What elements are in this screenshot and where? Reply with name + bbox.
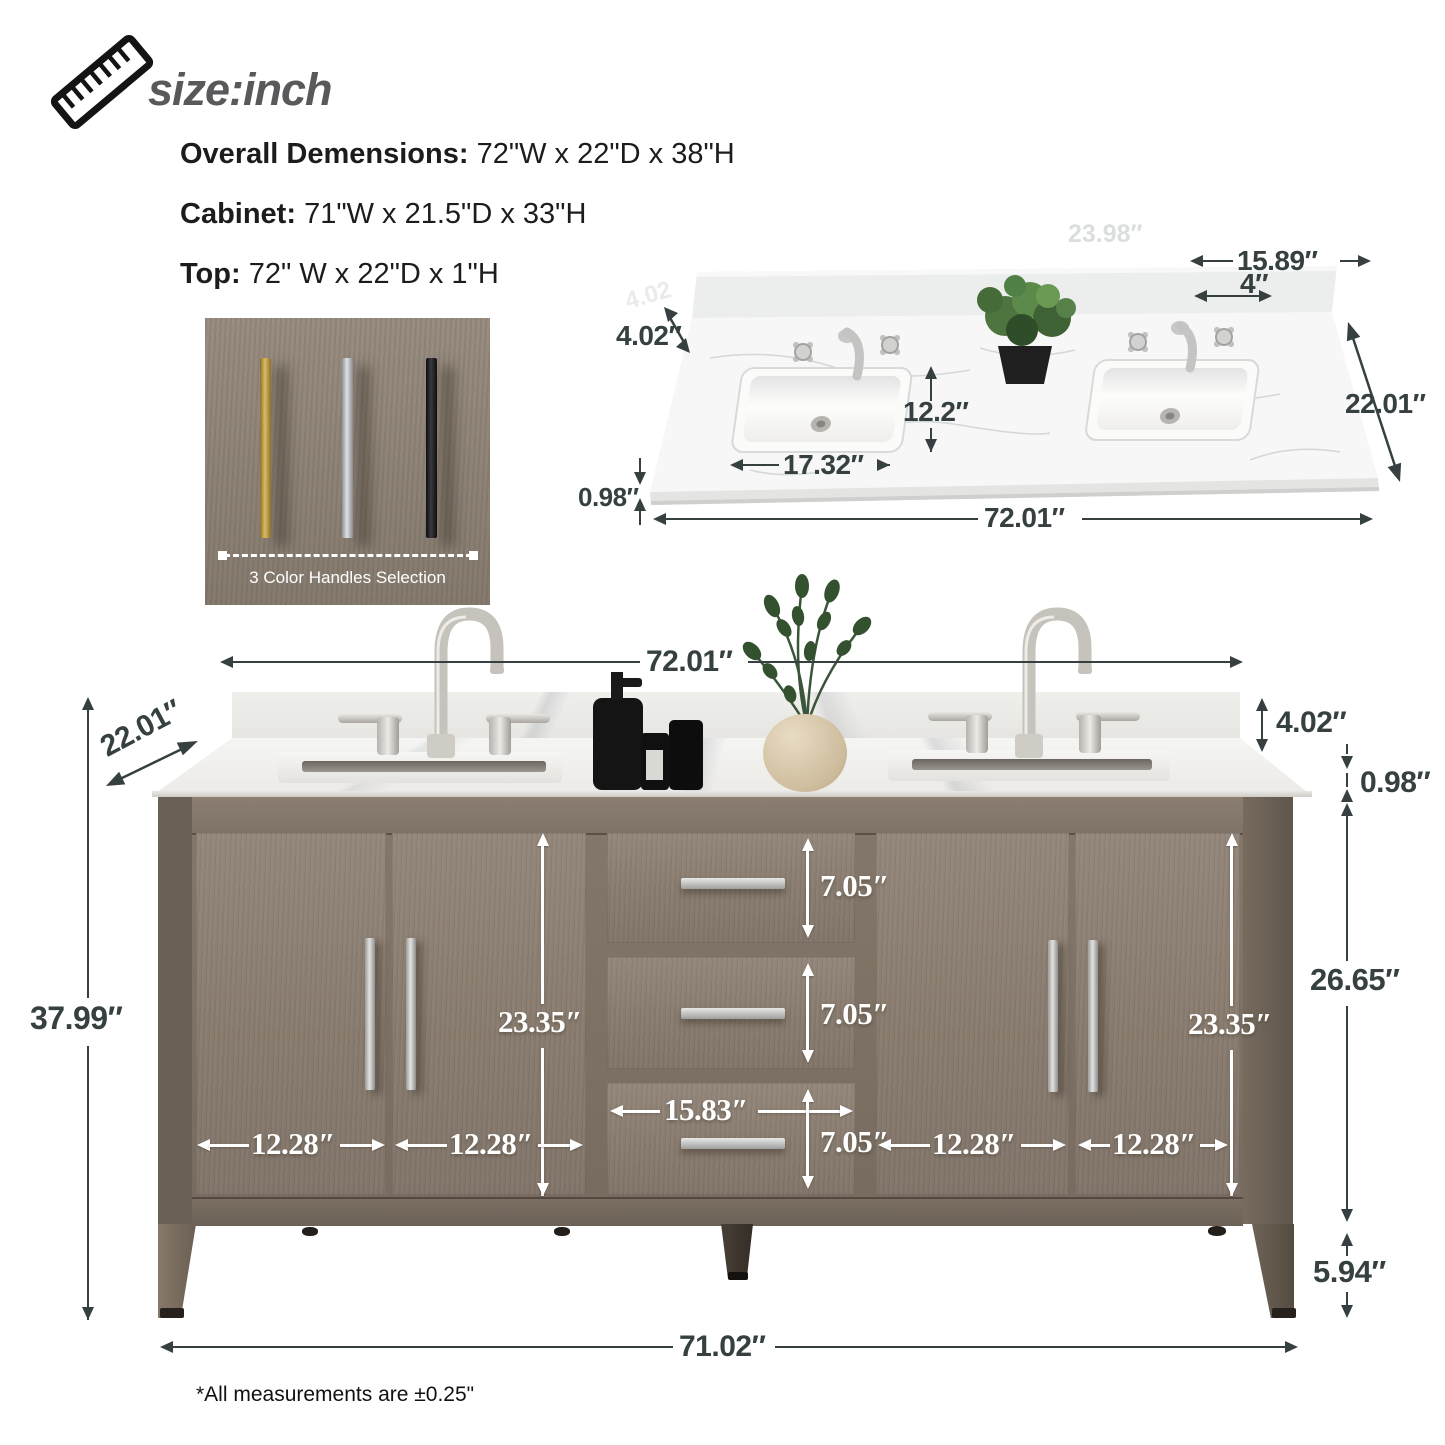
dim-vanity-topthickness-label: 0.98″: [1360, 766, 1430, 800]
arrow-head: [634, 472, 646, 485]
dim-line: [538, 1144, 572, 1147]
dim-line: [1207, 295, 1259, 297]
arrow-head: [925, 439, 937, 452]
arrow-head: [1256, 698, 1268, 711]
arrow-head: [634, 498, 646, 511]
dim-line: [758, 1110, 842, 1113]
dash-end-square-left: [218, 551, 227, 560]
vase: [763, 714, 847, 792]
dim-ct-depth-label: 22.01″: [1345, 388, 1425, 420]
handle-box-caption: 3 Color Handles Selection: [205, 568, 490, 588]
arrow-head: [372, 1139, 385, 1151]
dim-drawer-width-label: 15.83″: [664, 1092, 748, 1128]
arrow-head: [1215, 1139, 1228, 1151]
leg-left-foot: [160, 1308, 184, 1318]
diagram-canvas: size:inch Overall Demensions: 72"W x 22"…: [0, 0, 1445, 1445]
arrow-head: [1194, 290, 1207, 302]
dim-line: [173, 1346, 673, 1348]
arrow-head: [82, 697, 94, 710]
dim-vanity-leg-label: 5.94″: [1313, 1254, 1386, 1290]
dim-line: [666, 518, 978, 520]
arrow-head: [1360, 513, 1373, 525]
spec-cabinet-value: 71"W x 21.5"D x 33"H: [304, 198, 586, 230]
arrow-head: [802, 1050, 814, 1063]
divider-dashed-line: [224, 554, 472, 557]
arrow-head: [1285, 1341, 1298, 1353]
dim-line: [87, 1046, 89, 1320]
soap-bottle: [593, 698, 643, 790]
spec-top: Top: 72" W x 22"D x 1"H: [180, 258, 499, 291]
dim-line: [1021, 1144, 1055, 1147]
countertop-right-sink: [1085, 360, 1260, 440]
dim-line: [87, 710, 89, 998]
dim-drawer1-height-label: 7.05″: [820, 868, 889, 904]
dim-line: [209, 1144, 249, 1147]
countertop-illustration: [560, 238, 1425, 528]
leg-center: [718, 1224, 756, 1278]
dim-drawer3-height-label: 7.05″: [820, 1124, 889, 1160]
dim-line: [1346, 1292, 1348, 1306]
dim-line: [1230, 846, 1233, 1006]
adjuster-foot: [554, 1227, 570, 1236]
handle-silver: [342, 358, 353, 538]
spec-overall-value: 72"W x 22"D x 38"H: [477, 138, 735, 170]
arrow-head: [653, 513, 666, 525]
arrow-head: [925, 366, 937, 379]
dim-line: [1261, 711, 1263, 739]
drawer-handle: [681, 1008, 785, 1019]
cabinet-bottom-rail: [192, 1197, 1243, 1226]
faucet-lever-base: [1079, 715, 1101, 753]
handle-black: [426, 358, 437, 538]
size-unit-title: size:inch: [148, 64, 332, 116]
arrow-head: [537, 833, 549, 846]
arrow-head: [1341, 803, 1353, 816]
ruler-icon: [50, 34, 154, 130]
dim-line: [1346, 744, 1348, 754]
arrow-head: [1226, 1183, 1238, 1196]
dim-line: [639, 511, 641, 525]
dim-line: [806, 976, 809, 1050]
arrow-head: [1341, 1209, 1353, 1222]
bottle-label: [646, 750, 663, 780]
arrow-head: [537, 1183, 549, 1196]
dim-vanity-height-label: 37.99″: [30, 1000, 122, 1037]
door-handle: [365, 938, 375, 1090]
arrow-head: [1341, 756, 1353, 769]
arrow-head: [1256, 739, 1268, 752]
arrow-head: [802, 1089, 814, 1102]
dim-line: [541, 846, 544, 1004]
arrow-head: [802, 925, 814, 938]
dim-vanity-width-label: 72.01″: [646, 645, 732, 679]
dim-line: [1082, 518, 1360, 520]
jar: [669, 720, 703, 790]
dim-door-height-right-label: 23.35″: [1188, 1006, 1272, 1042]
leg-left: [158, 1224, 196, 1318]
dim-door-width-2-label: 12.28″: [449, 1126, 533, 1162]
dim-line: [1203, 260, 1233, 262]
dim-line: [340, 1144, 374, 1147]
dim-line: [1346, 816, 1348, 961]
sink-slot-left: [302, 761, 546, 772]
dim-line: [1230, 1050, 1233, 1196]
watermark-b: 23.98″: [1068, 220, 1143, 249]
arrow-head: [802, 1176, 814, 1189]
spec-cabinet-label: Cabinet:: [180, 198, 296, 230]
drawer-handle: [681, 1138, 785, 1149]
faucet-lever-base: [966, 715, 988, 753]
dim-line: [639, 458, 641, 472]
dim-vanity-body-label: 26.65″: [1310, 962, 1399, 998]
sink-slot-right: [912, 759, 1152, 770]
arrow-head: [1226, 833, 1238, 846]
dim-line: [407, 1144, 447, 1147]
adjuster-foot: [302, 1227, 318, 1236]
dim-line: [748, 661, 1230, 663]
door-handle: [406, 938, 416, 1090]
dim-line: [1200, 1144, 1216, 1147]
dim-drawer2-height-label: 7.05″: [820, 996, 889, 1032]
door-handle: [1088, 940, 1098, 1092]
dim-door-height-left-label: 23.35″: [498, 1004, 582, 1040]
arrow-head: [1190, 255, 1203, 267]
dim-door-width-4-label: 12.28″: [1112, 1126, 1196, 1162]
dim-ct-backsplash-arrow: [656, 300, 700, 362]
spec-top-label: Top:: [180, 258, 241, 290]
arrow-head: [1259, 290, 1272, 302]
leg-right-foot: [1272, 1308, 1296, 1318]
dim-ct-edge-label: 0.98″: [578, 482, 639, 513]
dim-ct-sinkdepth-label: 12.2″: [903, 396, 968, 428]
arrow-head: [802, 963, 814, 976]
arrow-head: [220, 656, 233, 668]
footnote: *All measurements are ±0.25": [196, 1383, 474, 1407]
spec-overall-label: Overall Demensions:: [180, 138, 469, 170]
dim-ct-width-label: 72.01″: [984, 502, 1064, 534]
arrow-head: [877, 459, 890, 471]
dim-line: [806, 1102, 809, 1176]
cabinet-left-side: [158, 797, 194, 1224]
arrow-head: [160, 1341, 173, 1353]
leg-center-foot: [728, 1272, 748, 1280]
dim-line: [743, 464, 779, 466]
handle-selection-box: 3 Color Handles Selection: [205, 318, 490, 605]
spec-cabinet: Cabinet: 71"W x 21.5"D x 33"H: [180, 198, 586, 231]
dash-end-square-right: [469, 551, 478, 560]
dim-vanity-base-label: 71.02″: [679, 1330, 765, 1364]
soap-pump-spout: [618, 678, 642, 687]
dim-line: [1346, 1006, 1348, 1216]
spec-overall: Overall Demensions: 72"W x 22"D x 38"H: [180, 138, 735, 171]
arrow-head: [1358, 255, 1371, 267]
arrow-head: [1341, 1305, 1353, 1318]
dim-line: [541, 1048, 544, 1196]
adjuster-foot: [1208, 1226, 1226, 1236]
faucet-lever-base: [377, 717, 399, 755]
arrow-head: [1341, 1233, 1353, 1246]
arrow-head: [82, 1307, 94, 1320]
arrow-head: [570, 1139, 583, 1151]
arrow-head: [1230, 656, 1243, 668]
arrow-head: [840, 1105, 853, 1117]
dim-vanity-backsplash-label: 4.02″: [1276, 706, 1346, 740]
arrow-head: [1341, 789, 1353, 802]
dim-door-width-3-label: 12.28″: [932, 1126, 1016, 1162]
vanity-plant: [712, 566, 902, 731]
arrow-head: [1053, 1139, 1066, 1151]
door-handle: [1048, 940, 1058, 1092]
arrow-head: [802, 838, 814, 851]
arrow-head: [730, 459, 743, 471]
dim-line: [1340, 260, 1360, 262]
drawer-handle: [681, 878, 785, 889]
dim-door-width-1-label: 12.28″: [251, 1126, 335, 1162]
dim-line: [1090, 1144, 1110, 1147]
dim-line: [806, 851, 809, 925]
leg-right: [1252, 1224, 1294, 1318]
handle-gold: [260, 358, 271, 538]
dim-ct-sinkwidth-label: 17.32″: [783, 449, 863, 481]
dim-line: [1346, 773, 1348, 787]
cabinet-top-rail: [192, 797, 1243, 835]
dim-line: [622, 1110, 660, 1113]
dim-line: [890, 1144, 930, 1147]
spec-top-value: 72" W x 22"D x 1"H: [249, 258, 499, 290]
dim-line: [775, 1346, 1285, 1348]
dim-line: [233, 661, 640, 663]
faucet-lever-base: [489, 717, 511, 755]
countertop-left-sink: [731, 368, 913, 452]
